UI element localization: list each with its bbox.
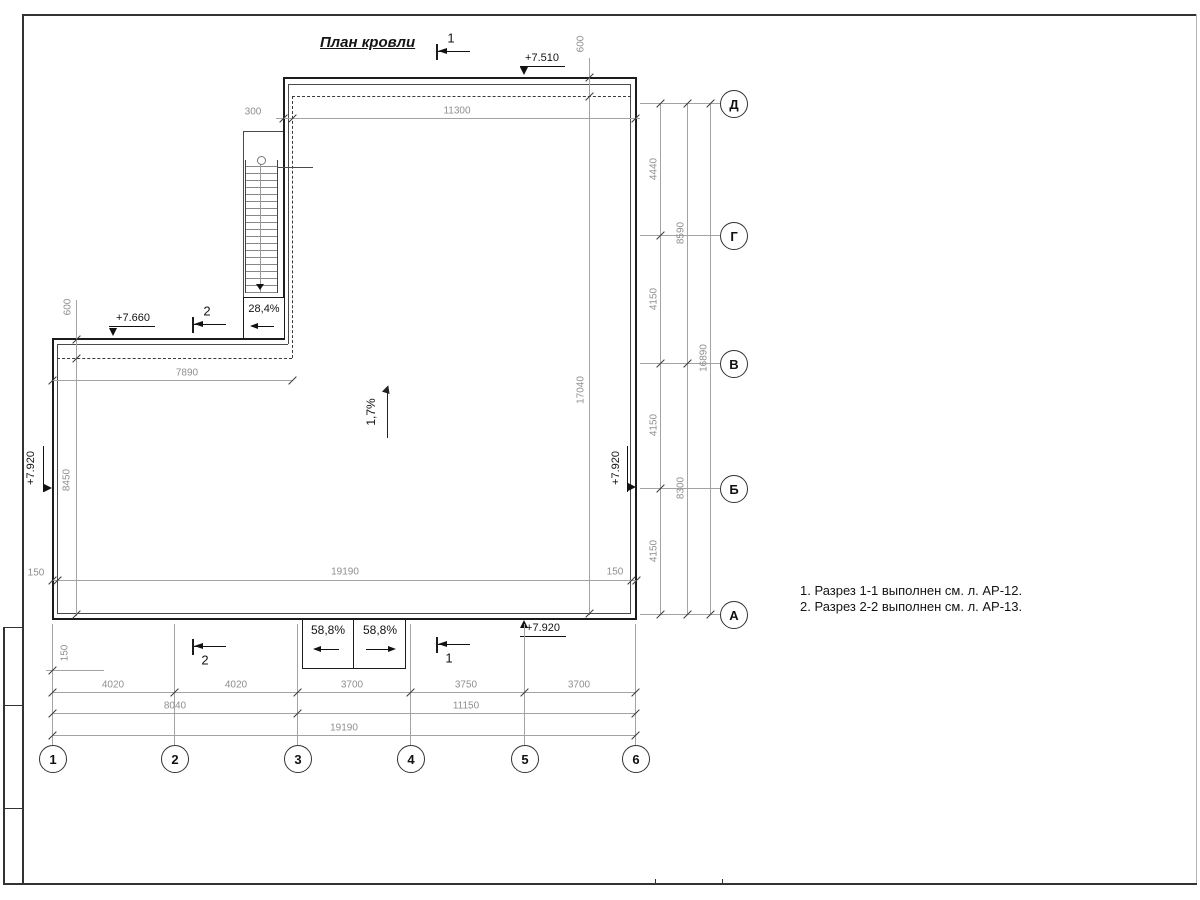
dim-line	[76, 300, 77, 616]
dim-label: 600	[576, 36, 587, 53]
roof-slope-arrowhead-icon	[382, 384, 392, 394]
extension-line	[297, 624, 298, 745]
parapet-inner-left	[57, 344, 58, 613]
axis-label: В	[729, 357, 738, 372]
margin-divider	[3, 808, 22, 809]
frame-top	[22, 14, 1197, 16]
axis-label: А	[729, 608, 738, 623]
axis-label: 1	[49, 752, 56, 767]
axis-circle-2: 2	[161, 745, 189, 773]
dim-line	[687, 103, 688, 614]
elevation-mark-wing: +7.660	[116, 312, 150, 324]
section-mark-1-top: 1	[447, 31, 454, 46]
dim-label: 300	[245, 107, 262, 118]
titleblock-tick	[722, 879, 723, 884]
dim-line	[589, 58, 590, 615]
frame-right	[1196, 14, 1197, 883]
note-line-2: 2. Разрез 2-2 выполнен см. л. АР-13.	[800, 599, 1022, 614]
section-arrowhead-icon	[194, 643, 203, 649]
margin-left-edge	[3, 627, 5, 885]
dim-label: 7890	[176, 368, 198, 379]
elevation-mark-right: +7.920	[610, 451, 622, 485]
section-arrowhead-icon	[438, 48, 447, 54]
ramp-arrowhead-left-icon	[313, 646, 321, 652]
elevation-shelf	[520, 636, 566, 637]
parapet-inner-bottom	[57, 613, 631, 614]
section-arrowhead-icon	[438, 641, 447, 647]
section-arrowhead-icon	[194, 321, 203, 327]
dim-label: 16890	[699, 344, 710, 372]
wall-line-top	[283, 77, 637, 79]
margin-divider	[3, 705, 22, 706]
ladder-down-arrow-icon	[256, 284, 264, 290]
slope-label-ramp-left: 58,8%	[311, 623, 345, 637]
axis-label: Б	[729, 482, 738, 497]
margin-divider	[3, 627, 22, 628]
frame-left	[22, 14, 24, 883]
dim-line	[660, 103, 661, 614]
ramp-arrowhead-right-icon	[388, 646, 396, 652]
axis-circle-b: Б	[720, 475, 748, 503]
note-line-1: 1. Разрез 1-1 выполнен см. л. АР-12.	[800, 583, 1022, 598]
dim-line	[52, 713, 635, 714]
axis-circle-a: А	[720, 601, 748, 629]
dim-label: 8590	[676, 222, 687, 244]
dim-label: 19190	[330, 723, 358, 734]
dim-label: 4020	[102, 680, 124, 691]
section-mark-1-bottom: 1	[445, 651, 452, 666]
ladder	[245, 160, 278, 293]
dim-label: 4020	[225, 680, 247, 691]
dim-line	[276, 118, 640, 119]
roof-slope-arrow-line	[387, 392, 388, 438]
dim-label: 150	[28, 568, 45, 579]
axis-label: 2	[171, 752, 178, 767]
dim-label: 11300	[443, 106, 470, 117]
dim-label: 19190	[331, 567, 359, 578]
dashed-eaves-line-top	[292, 96, 631, 97]
dashed-eaves-line-wing	[57, 358, 292, 359]
frame-bottom	[3, 883, 1197, 885]
slope-arrowhead-left-icon	[250, 323, 258, 329]
elevation-mark-top: +7.510	[525, 52, 559, 64]
dim-label: 4150	[649, 540, 660, 562]
axis-label: Г	[730, 229, 737, 244]
extension-line	[635, 624, 636, 745]
elevation-shelf	[109, 326, 155, 327]
ramp-arrow-right-icon	[366, 649, 390, 650]
elevation-arrow-icon	[520, 67, 528, 75]
axis-circle-6: 6	[622, 745, 650, 773]
extension-line	[410, 624, 411, 745]
axis-label: Д	[729, 97, 738, 112]
dim-line	[710, 103, 711, 614]
parapet-inner-right	[630, 84, 631, 614]
dim-label: 3700	[568, 680, 590, 691]
ladder-upper-box-top	[243, 131, 283, 132]
titleblock-tick	[655, 879, 656, 884]
extension-line	[52, 624, 53, 745]
extension-line	[174, 624, 175, 745]
dim-line	[52, 580, 637, 581]
dim-line	[46, 670, 104, 671]
dim-label: 600	[63, 299, 74, 316]
drawing-title: План кровли	[320, 34, 415, 51]
dim-label: 8040	[164, 701, 186, 712]
dim-label: 3750	[455, 680, 477, 691]
dim-line	[52, 692, 635, 693]
axis-circle-g: Г	[720, 222, 748, 250]
parapet-inner-top	[288, 84, 631, 85]
wall-line-right	[635, 77, 637, 620]
axis-label: 5	[521, 752, 528, 767]
dim-label: 4150	[649, 288, 660, 310]
slope-label-ladder: 28,4%	[248, 303, 279, 315]
ladder-platform-line	[277, 167, 313, 168]
dim-label: 4150	[649, 414, 660, 436]
section-mark-2-bottom: 2	[201, 653, 208, 668]
ladder-upper-box-left	[243, 131, 244, 160]
dim-label: 8450	[62, 469, 73, 491]
dim-label: 8300	[676, 477, 687, 499]
dim-label: 150	[60, 645, 71, 662]
elevation-mark-bottom: +7.920	[526, 622, 560, 634]
slope-label-roof: 1,7%	[364, 398, 378, 425]
axis-circle-3: 3	[284, 745, 312, 773]
axis-label: 4	[407, 752, 414, 767]
axis-label: 6	[632, 752, 639, 767]
elevation-arrow-icon	[109, 328, 117, 336]
dim-label: 3700	[341, 680, 363, 691]
dim-line	[52, 735, 635, 736]
axis-circle-4: 4	[397, 745, 425, 773]
dim-line	[52, 380, 293, 381]
dim-label: 11150	[453, 701, 479, 712]
dim-label: 4440	[649, 158, 660, 180]
elevation-mark-left: +7.920	[25, 451, 37, 485]
section-mark-2-left: 2	[203, 304, 210, 319]
dim-label: 17040	[576, 376, 587, 404]
extension-line	[524, 624, 525, 745]
ladder-pivot-circle	[257, 156, 266, 165]
dashed-eaves-line-vert	[292, 96, 293, 358]
drawing-sheet: План кровли 28,4% 58,8% 58,8% 1,7% +7.51…	[0, 0, 1200, 900]
axis-circle-d: Д	[720, 90, 748, 118]
axis-label: 3	[294, 752, 301, 767]
axis-circle-v: В	[720, 350, 748, 378]
axis-circle-1: 1	[39, 745, 67, 773]
elevation-arrow-icon	[44, 484, 52, 492]
elevation-arrow-icon	[628, 483, 636, 491]
ladder-enclosure-left	[243, 160, 244, 298]
dim-label: 150	[607, 567, 624, 578]
parapet-inner-wing-top	[57, 344, 288, 345]
axis-circle-5: 5	[511, 745, 539, 773]
slope-label-ramp-right: 58,8%	[363, 623, 397, 637]
